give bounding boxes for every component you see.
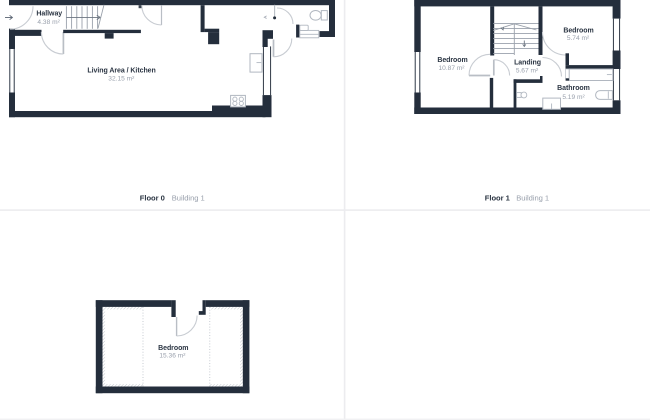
svg-text:15.36 m²: 15.36 m²: [159, 353, 186, 360]
svg-text:5.19 m²: 5.19 m²: [562, 94, 585, 101]
svg-text:4.38 m²: 4.38 m²: [37, 19, 60, 26]
svg-text:Bathroom: Bathroom: [557, 85, 590, 92]
svg-text:32.15 m²: 32.15 m²: [108, 75, 135, 82]
svg-text:Floor 1: Floor 1: [485, 193, 511, 202]
svg-text:Floor 0: Floor 0: [140, 193, 165, 202]
svg-text:Landing: Landing: [514, 60, 541, 67]
svg-text:5.67 m²: 5.67 m²: [516, 68, 539, 75]
svg-text:10.87 m²: 10.87 m²: [438, 65, 465, 72]
svg-text:Living Area / Kitchen: Living Area / Kitchen: [87, 68, 155, 75]
svg-text:Hallway: Hallway: [36, 11, 62, 18]
svg-text:Bedroom: Bedroom: [563, 27, 593, 34]
svg-text:5.74 m²: 5.74 m²: [567, 35, 590, 42]
svg-text:Bedroom: Bedroom: [158, 345, 188, 352]
svg-text:Bedroom: Bedroom: [437, 57, 467, 64]
svg-text:Building 1: Building 1: [516, 193, 549, 202]
svg-text:Building 1: Building 1: [172, 193, 205, 202]
